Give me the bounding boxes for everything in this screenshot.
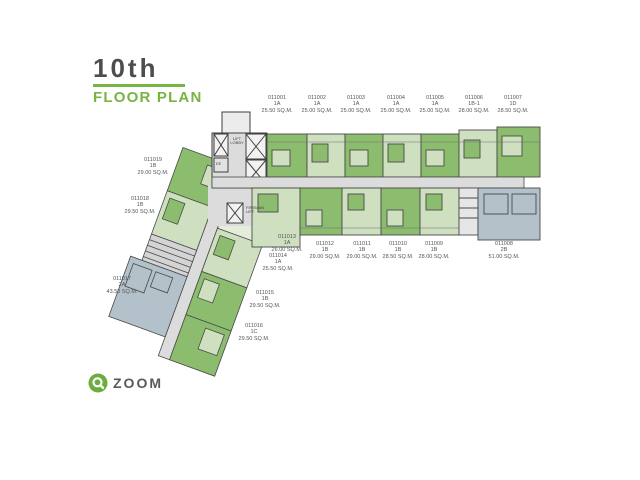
unit-label-011017: 0110172A43.50 SQ.M. [107, 276, 138, 295]
unit-label-011018: 0110181B29.50 SQ.M. [125, 196, 156, 215]
unit-label-011007: 0110071D28.50 SQ.M. [498, 95, 529, 114]
floor-plan-page: 10th FLOOR PLAN [0, 0, 640, 480]
roof-access-box [222, 112, 250, 133]
unit-011003-room [350, 150, 368, 166]
lift-lobby-label: LIFT LOBBY [230, 137, 243, 146]
unit-label-011012: 0110121B29.00 SQ.M. [310, 241, 341, 260]
unit-label-011001: 0110011A25.50 SQ.M. [262, 95, 293, 114]
unit-011002-room [312, 144, 328, 162]
unit-011005-room [426, 150, 444, 166]
zoom-brand-logo: ZOOM [88, 373, 163, 393]
unit-label-011004: 0110041A25.00 SQ.M. [381, 95, 412, 114]
floor-plan-drawing [0, 0, 640, 480]
main-corridor [212, 177, 524, 188]
unit-label-011003: 0110031A25.00 SQ.M. [341, 95, 372, 114]
brand-text: ZOOM [113, 375, 163, 391]
unit-011007-room [502, 136, 522, 156]
unit-label-011016: 0110161C29.50 SQ.M. [239, 323, 270, 342]
unit-label-011005: 0110051A25.00 SQ.M. [420, 95, 451, 114]
fireman-lift-label: FIREMAN LIFT [246, 206, 264, 215]
unit-011004-room [388, 144, 404, 162]
unit-011012-room [306, 210, 322, 226]
unit-label-011013: 0110131A26.00 SQ.M. [272, 234, 303, 253]
magnifier-q-icon [88, 373, 108, 393]
unit-label-011015: 0110151B29.50 SQ.M. [250, 290, 281, 309]
service-core [459, 188, 478, 235]
unit-label-011019: 0110191B29.00 SQ.M. [138, 157, 169, 176]
unit-011001-room [272, 150, 290, 166]
unit-label-011011: 0110111B29.00 SQ.M. [347, 241, 378, 260]
unit-011010-room [387, 210, 403, 226]
unit-label-011008: 0110082B51.00 SQ.M. [489, 241, 520, 260]
unit-label-011010: 0110101B28.50 SQ.M. [383, 241, 414, 260]
unit-label-011009: 0110091B28.00 SQ.M. [419, 241, 450, 260]
unit-label-011006: 0110061B-128.00 SQ.M. [459, 95, 490, 114]
unit-011011-room [348, 194, 364, 210]
unit-label-011014: 0110141A25.50 SQ.M. [263, 253, 294, 272]
unit-label-011002: 0110021A25.00 SQ.M. [302, 95, 333, 114]
unit-011006-room [464, 140, 480, 158]
unit-011009-room [426, 194, 442, 210]
ee-label: EE [216, 162, 221, 166]
